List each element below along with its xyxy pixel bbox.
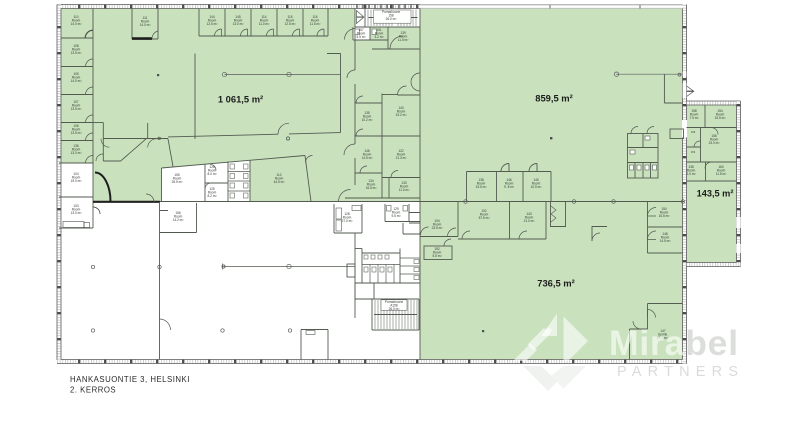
svg-text:2. KERROS: 2. KERROS xyxy=(70,386,116,395)
svg-text:1 061,5 m²: 1 061,5 m² xyxy=(218,94,263,105)
svg-text:128Room27.0 m²: 128Room27.0 m² xyxy=(342,212,353,223)
svg-text:143,5 m²: 143,5 m² xyxy=(697,189,734,199)
svg-text:129Room9.5 m²: 129Room9.5 m² xyxy=(391,207,400,218)
svg-text:859,5 m²: 859,5 m² xyxy=(535,93,573,104)
svg-text:736,5 m²: 736,5 m² xyxy=(537,278,575,289)
svg-text:104Room19.0 m²: 104Room19.0 m² xyxy=(71,172,82,183)
svg-text:HANKASUONTIE 3, HELSINKI: HANKASUONTIE 3, HELSINKI xyxy=(70,375,190,384)
svg-text:103Room13.0 m²: 103Room13.0 m² xyxy=(71,204,82,215)
svg-text:159: 159 xyxy=(691,130,696,134)
svg-text:PARTNERS: PARTNERS xyxy=(617,364,744,380)
svg-text:153: 153 xyxy=(691,150,696,154)
svg-text:156Room14.2 m²: 156Room14.2 m² xyxy=(173,211,184,222)
